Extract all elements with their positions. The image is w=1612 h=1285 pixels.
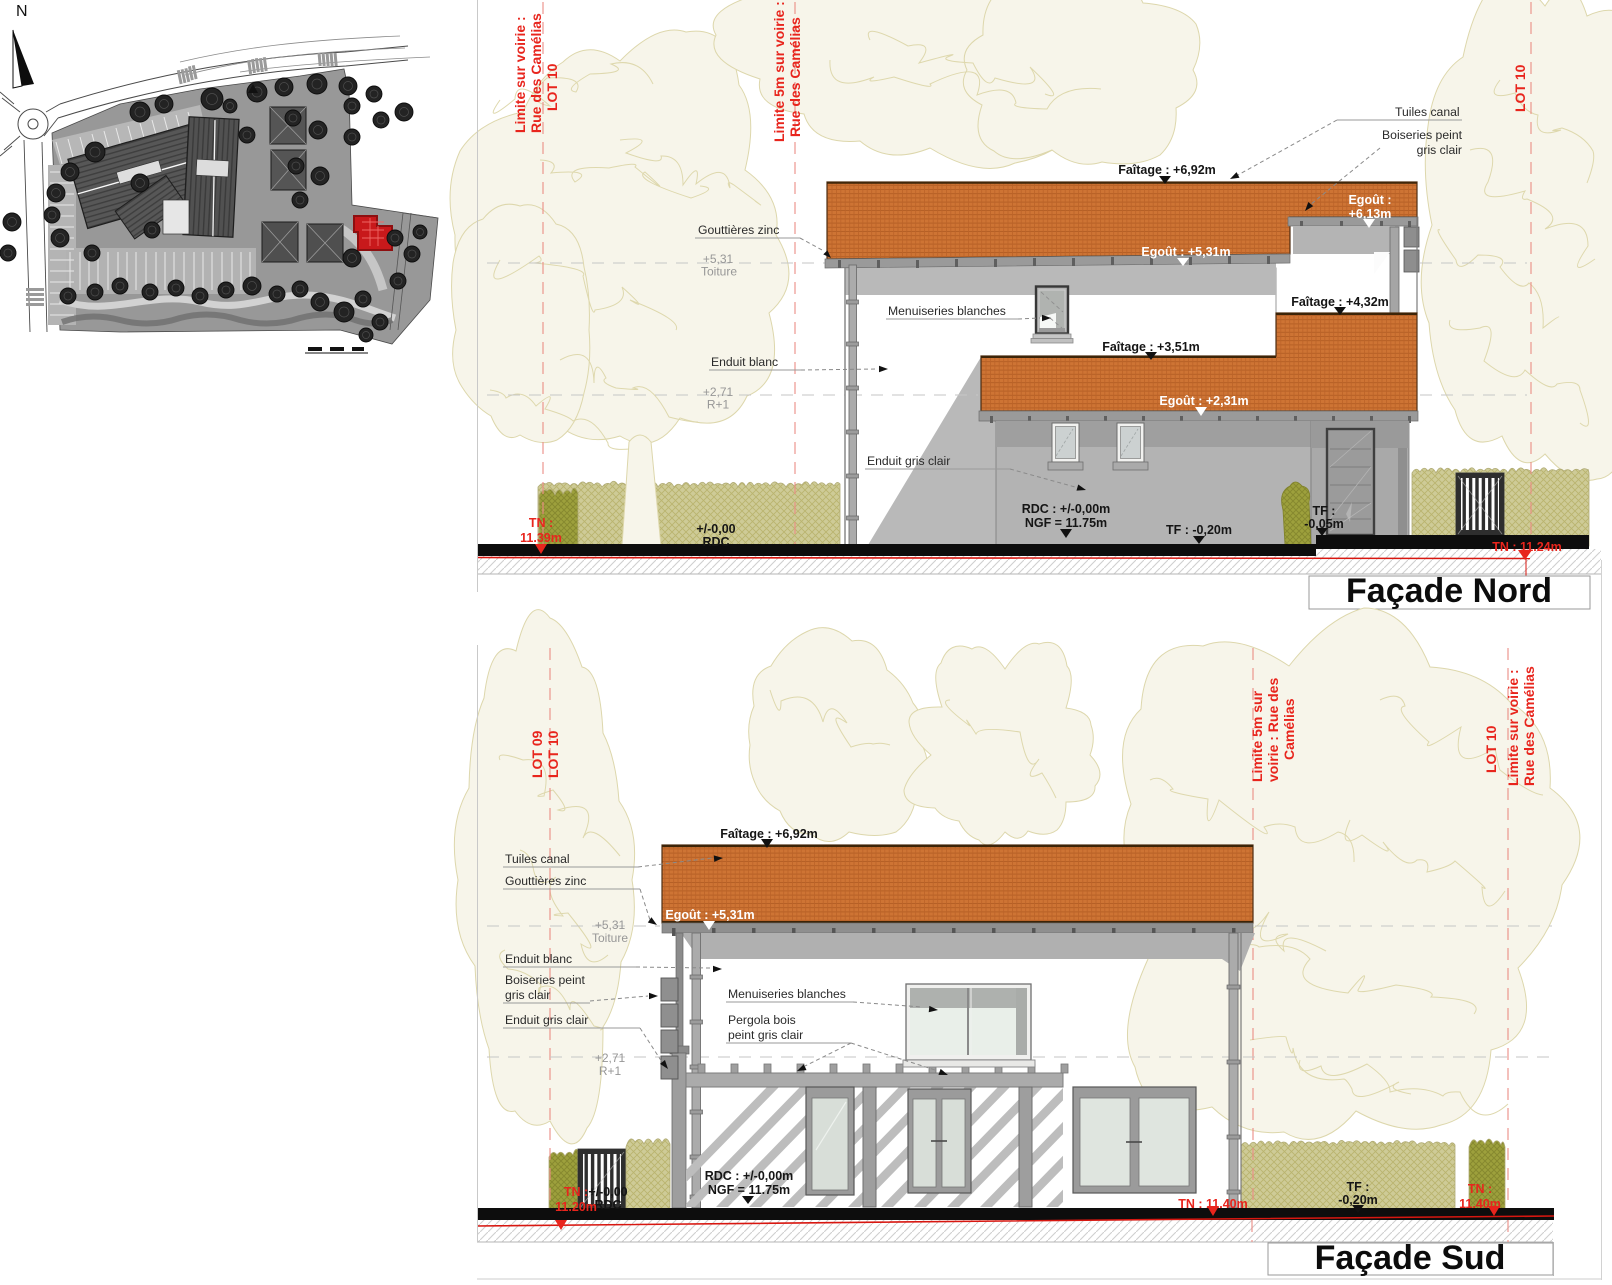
svg-text:RDC: RDC bbox=[702, 535, 729, 549]
svg-text:RDC : +/-0,00m: RDC : +/-0,00m bbox=[705, 1169, 794, 1183]
svg-text:Pergola bois: Pergola bois bbox=[728, 1013, 796, 1027]
svg-text:Toiture: Toiture bbox=[592, 931, 628, 945]
svg-text:TF : -0,20m: TF : -0,20m bbox=[1166, 523, 1232, 537]
svg-text:voirie : Rue des: voirie : Rue des bbox=[1265, 678, 1281, 782]
svg-text:Tuiles canal: Tuiles canal bbox=[505, 852, 570, 866]
svg-text:Toiture: Toiture bbox=[701, 265, 737, 279]
svg-text:TN :: TN : bbox=[1468, 1182, 1492, 1196]
svg-text:TF :: TF : bbox=[1313, 504, 1336, 518]
svg-text:LOT 10: LOT 10 bbox=[545, 730, 561, 778]
svg-text:Enduit blanc: Enduit blanc bbox=[505, 952, 572, 966]
svg-text:Rue des Camélias: Rue des Camélias bbox=[1521, 666, 1537, 786]
svg-text:Rue des Camélias: Rue des Camélias bbox=[787, 17, 803, 137]
svg-text:TN :: TN : bbox=[564, 1185, 588, 1199]
svg-text:Limite 5m sur: Limite 5m sur bbox=[1249, 690, 1265, 782]
svg-text:RDC : +/-0,00m: RDC : +/-0,00m bbox=[1022, 502, 1111, 516]
svg-text:+5,31: +5,31 bbox=[595, 918, 626, 932]
svg-text:TN : 11.24m: TN : 11.24m bbox=[1492, 540, 1561, 554]
svg-text:Egoût : +5,31m: Egoût : +5,31m bbox=[1141, 245, 1230, 259]
svg-text:+6,13m: +6,13m bbox=[1349, 207, 1392, 221]
svg-text:LOT 10: LOT 10 bbox=[1483, 725, 1499, 773]
svg-text:+2,71: +2,71 bbox=[595, 1051, 626, 1065]
svg-text:Tuiles canal: Tuiles canal bbox=[1395, 105, 1460, 119]
svg-text:Egoût :: Egoût : bbox=[1348, 193, 1391, 207]
svg-text:TN : 11.40m: TN : 11.40m bbox=[1178, 1197, 1247, 1211]
svg-text:Façade Nord: Façade Nord bbox=[1346, 572, 1552, 610]
svg-text:-0,20m: -0,20m bbox=[1338, 1193, 1378, 1207]
svg-text:Faîtage : +6,92m: Faîtage : +6,92m bbox=[1118, 163, 1216, 177]
svg-text:Faîtage : +4,32m: Faîtage : +4,32m bbox=[1291, 295, 1389, 309]
svg-text:peint gris clair: peint gris clair bbox=[728, 1028, 803, 1042]
svg-text:N: N bbox=[16, 3, 28, 20]
svg-text:Limite 5m sur voirie :: Limite 5m sur voirie : bbox=[771, 1, 787, 142]
svg-text:Limite sur voirie :: Limite sur voirie : bbox=[1505, 669, 1521, 786]
svg-text:LOT 10: LOT 10 bbox=[1512, 64, 1528, 112]
svg-text:Boiseries peint: Boiseries peint bbox=[1382, 128, 1463, 142]
svg-text:TF :: TF : bbox=[1347, 1180, 1370, 1194]
svg-text:Gouttières zinc: Gouttières zinc bbox=[698, 223, 779, 237]
svg-text:+/-0,00: +/-0,00 bbox=[588, 1185, 627, 1199]
svg-text:Enduit gris clair: Enduit gris clair bbox=[867, 454, 950, 468]
svg-text:LOT 10: LOT 10 bbox=[544, 63, 560, 111]
svg-text:11.40m: 11.40m bbox=[1459, 1197, 1501, 1211]
svg-text:NGF = 11.75m: NGF = 11.75m bbox=[708, 1183, 790, 1197]
svg-text:TN :: TN : bbox=[529, 516, 553, 530]
svg-text:NGF = 11.75m: NGF = 11.75m bbox=[1025, 516, 1107, 530]
svg-text:gris clair: gris clair bbox=[1417, 143, 1462, 157]
svg-text:gris clair: gris clair bbox=[505, 988, 550, 1002]
svg-text:+/-0,00: +/-0,00 bbox=[696, 522, 735, 536]
svg-text:Façade Sud: Façade Sud bbox=[1315, 1239, 1506, 1277]
svg-text:Faîtage : +6,92m: Faîtage : +6,92m bbox=[720, 827, 818, 841]
svg-text:Egoût : +2,31m: Egoût : +2,31m bbox=[1159, 394, 1248, 408]
svg-text:Gouttières zinc: Gouttières zinc bbox=[505, 874, 586, 888]
svg-text:Enduit gris clair: Enduit gris clair bbox=[505, 1013, 588, 1027]
svg-text:Rue des Camélias: Rue des Camélias bbox=[528, 13, 544, 133]
svg-text:Camélias: Camélias bbox=[1281, 698, 1297, 760]
svg-text:11.20m: 11.20m bbox=[555, 1200, 597, 1214]
svg-text:Enduit blanc: Enduit blanc bbox=[711, 355, 778, 369]
svg-text:R+1: R+1 bbox=[599, 1064, 622, 1078]
svg-text:11.39m: 11.39m bbox=[520, 531, 562, 545]
svg-text:Egoût : +5,31m: Egoût : +5,31m bbox=[665, 908, 754, 922]
svg-text:RDC: RDC bbox=[594, 1198, 621, 1212]
svg-text:Faîtage : +3,51m: Faîtage : +3,51m bbox=[1102, 340, 1200, 354]
svg-text:R+1: R+1 bbox=[707, 398, 730, 412]
svg-text:Boiseries peint: Boiseries peint bbox=[505, 973, 586, 987]
svg-text:LOT 09: LOT 09 bbox=[529, 730, 545, 778]
svg-text:Limite sur voirie :: Limite sur voirie : bbox=[512, 16, 528, 133]
svg-text:Menuiseries blanches: Menuiseries blanches bbox=[728, 987, 846, 1001]
svg-text:Menuiseries blanches: Menuiseries blanches bbox=[888, 304, 1006, 318]
